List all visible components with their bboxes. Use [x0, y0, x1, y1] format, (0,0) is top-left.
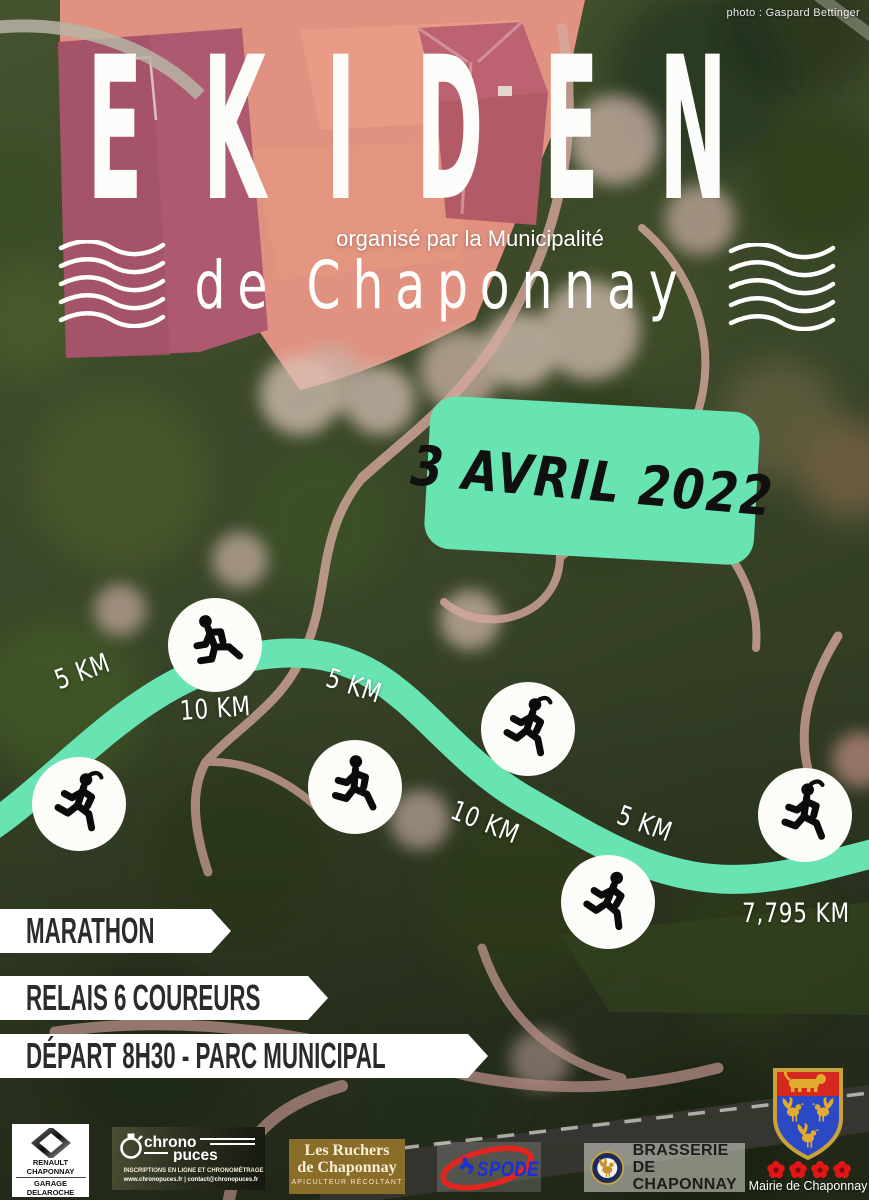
renault-line2: GARAGE DELAROCHE [16, 1177, 86, 1197]
runner-icon [44, 769, 114, 839]
ruchers-line3: APICULTEUR RÉCOLTANT [289, 1179, 405, 1186]
ruchers-line1: Les Ruchers [289, 1142, 405, 1159]
runner-badge [561, 855, 655, 949]
chronopuces-line1: INSCRIPTIONS EN LIGNE ET CHRONOMÉTRAGE [124, 1167, 254, 1176]
runner-icon [571, 865, 646, 940]
banner-label: MARATHON [26, 910, 155, 952]
wave-lines-left-icon [57, 240, 167, 328]
sponsor-brasserie: BRASSERIE DE CHAPONNAY [584, 1143, 745, 1192]
runner-icon [313, 745, 398, 830]
brasserie-badge-icon [590, 1149, 625, 1187]
stopwatch-icon [122, 1139, 141, 1158]
event-title: EKIDEN [87, 15, 787, 245]
wave-lines-right-icon [727, 243, 837, 331]
brasserie-line1: BRASSERIE DE [633, 1142, 745, 1176]
sponsor-renault: RENAULT CHAPONNAY GARAGE DELAROCHE [12, 1124, 89, 1197]
runner-badge [758, 768, 852, 862]
renault-diamond-icon [28, 1128, 74, 1158]
renault-line1: RENAULT CHAPONNAY [16, 1158, 86, 1176]
sponsor-chronopuces: chrono puces INSCRIPTIONS EN LIGNE ET CH… [112, 1127, 265, 1190]
mairie-coat-of-arms-icon [769, 1066, 847, 1163]
runner-icon [493, 694, 563, 764]
banner-depart: DÉPART 8H30 - PARC MUNICIPAL [0, 1034, 488, 1078]
brasserie-line2: CHAPONNAY [633, 1176, 745, 1193]
banner-marathon: MARATHON [0, 909, 231, 953]
banner-relais: RELAIS 6 COUREURS [0, 976, 328, 1020]
date-badge: 3 AVRIL 2022 [423, 395, 761, 566]
event-date: 3 AVRIL 2022 [408, 433, 775, 528]
sponsor-ruchers: Les Ruchers de Chaponnay APICULTEUR RÉCO… [289, 1139, 405, 1194]
chronopuces-logo: chrono puces [118, 1130, 259, 1162]
banner-label: RELAIS 6 COUREURS [26, 977, 260, 1019]
sponsor-spode: SPODE [437, 1142, 541, 1192]
runner-badge [32, 757, 126, 851]
chronopuces-line2: www.chronopuces.fr | contact@chronopuces… [124, 1176, 254, 1185]
runner-icon [764, 774, 845, 855]
spode-logo: SPODE [437, 1142, 541, 1192]
ruchers-line2: de Chaponnay [289, 1159, 405, 1176]
chronopuces-word2: puces [173, 1147, 218, 1162]
distance-label: 10 KM [179, 691, 252, 727]
distance-label: 7,795 KM [742, 898, 850, 929]
spode-name: SPODE [477, 1158, 539, 1181]
mairie-caption: Mairie de Chaponnay [748, 1179, 868, 1193]
banner-label: DÉPART 8H30 - PARC MUNICIPAL [26, 1035, 386, 1077]
runner-badge [168, 598, 262, 692]
event-subtitle: de Chaponnay [195, 247, 690, 324]
ekiden-poster: photo : Gaspard Bettinger EKIDEN de Chap… [0, 0, 869, 1200]
runner-badge [481, 682, 575, 776]
runner-badge [308, 740, 402, 834]
